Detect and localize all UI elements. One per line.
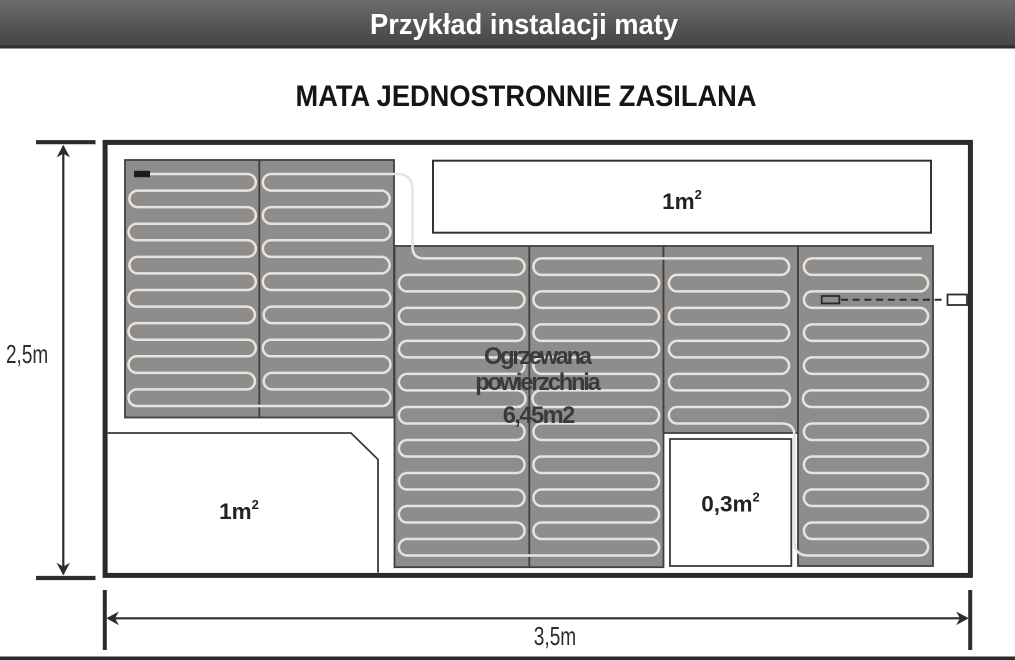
svg-text:powierzchnia: powierzchnia (475, 370, 601, 396)
svg-text:3,5m: 3,5m (534, 621, 576, 651)
svg-text:0,3m2: 0,3m2 (701, 490, 760, 517)
svg-text:2,5m: 2,5m (6, 339, 48, 369)
svg-text:MATA JEDNOSTRONNIE ZASILANA: MATA JEDNOSTRONNIE ZASILANA (296, 81, 757, 113)
svg-text:Ogrzewana: Ogrzewana (484, 344, 593, 370)
svg-text:Przykład instalacji maty: Przykład instalacji maty (370, 8, 678, 40)
svg-text:6,45m2: 6,45m2 (503, 403, 576, 429)
